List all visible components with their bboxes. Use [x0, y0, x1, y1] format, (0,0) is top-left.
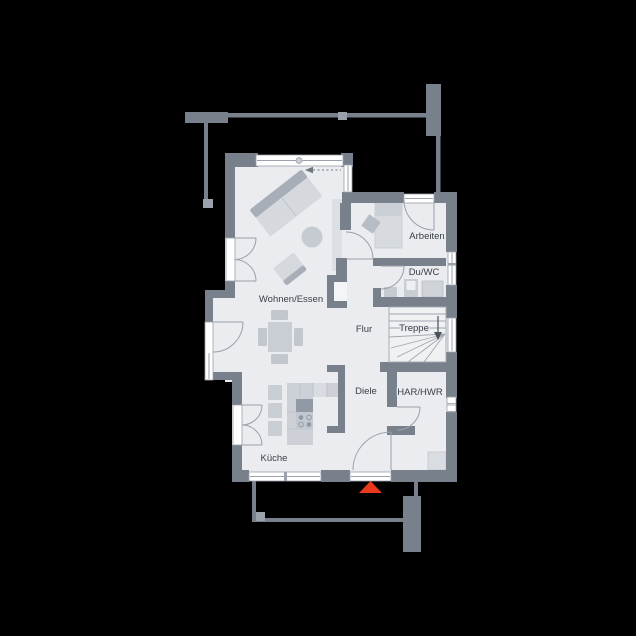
dining-chair — [271, 354, 288, 364]
room-label-wohnen-essen: Wohnen/Essen — [259, 294, 323, 305]
room-label-flur: Flur — [356, 324, 372, 335]
privacy-wall-top-right — [426, 84, 441, 136]
post-left — [203, 199, 213, 208]
window-right-duwc — [448, 252, 456, 285]
pillar-bottom-right — [403, 496, 421, 552]
post-bottom-left — [256, 512, 265, 521]
entrance-marker — [359, 481, 382, 493]
chimney — [327, 275, 347, 308]
window-handle — [296, 158, 302, 164]
floor-plan-stage: Wohnen/Essen Arbeiten Du/WC Flur Treppe … — [0, 0, 636, 636]
entrance-threshold — [350, 472, 391, 481]
appliance-har — [428, 452, 446, 470]
kitchen-island-unit — [268, 421, 282, 436]
kitchen-counter-cell — [313, 383, 327, 397]
dining-table — [268, 322, 292, 352]
dining-chair — [258, 328, 267, 346]
oven — [296, 399, 313, 412]
kitchen-island-unit — [268, 385, 282, 400]
dining-chair — [271, 310, 288, 320]
burner — [299, 415, 304, 420]
room-label-diele: Diele — [355, 386, 377, 397]
wall-segment-top-left — [185, 112, 228, 123]
room-label-du-wc: Du/WC — [409, 267, 440, 278]
daybed-pillow — [375, 203, 402, 216]
dining-chair — [294, 328, 303, 346]
room-label-arbeiten: Arbeiten — [409, 231, 444, 242]
terrace-outline-left — [204, 123, 208, 201]
wc-lid — [407, 281, 416, 290]
stove — [296, 412, 313, 429]
coffee-table — [302, 227, 323, 248]
terrace-outline-top — [228, 113, 437, 118]
french-door-frame-living — [226, 238, 235, 281]
window-living-top — [256, 155, 343, 166]
meter-box — [447, 397, 456, 404]
kitchen-island-unit — [268, 403, 282, 418]
window-living-right — [344, 165, 352, 192]
privacy-wall-connector — [436, 136, 441, 194]
terrace-door-arbeiten-frame — [404, 194, 434, 203]
shower — [422, 281, 443, 297]
french-door-frame-kitchen — [233, 405, 242, 445]
window-right-stair — [448, 318, 456, 352]
room-label-har-hwr: HAR/HWR — [397, 387, 443, 398]
window-kitchen-bottom — [249, 472, 321, 481]
room-label-kueche: Küche — [261, 453, 288, 464]
meter-box — [447, 405, 456, 412]
path-outline-left — [252, 480, 256, 522]
floor-plan-canvas: Wohnen/Essen Arbeiten Du/WC Flur Treppe … — [0, 0, 636, 636]
pillar-connector — [414, 482, 418, 497]
window-door-left — [205, 322, 213, 380]
path-outline-bottom — [252, 518, 405, 522]
burner — [307, 422, 312, 427]
room-label-treppe: Treppe — [399, 323, 429, 334]
post-top — [338, 112, 347, 120]
